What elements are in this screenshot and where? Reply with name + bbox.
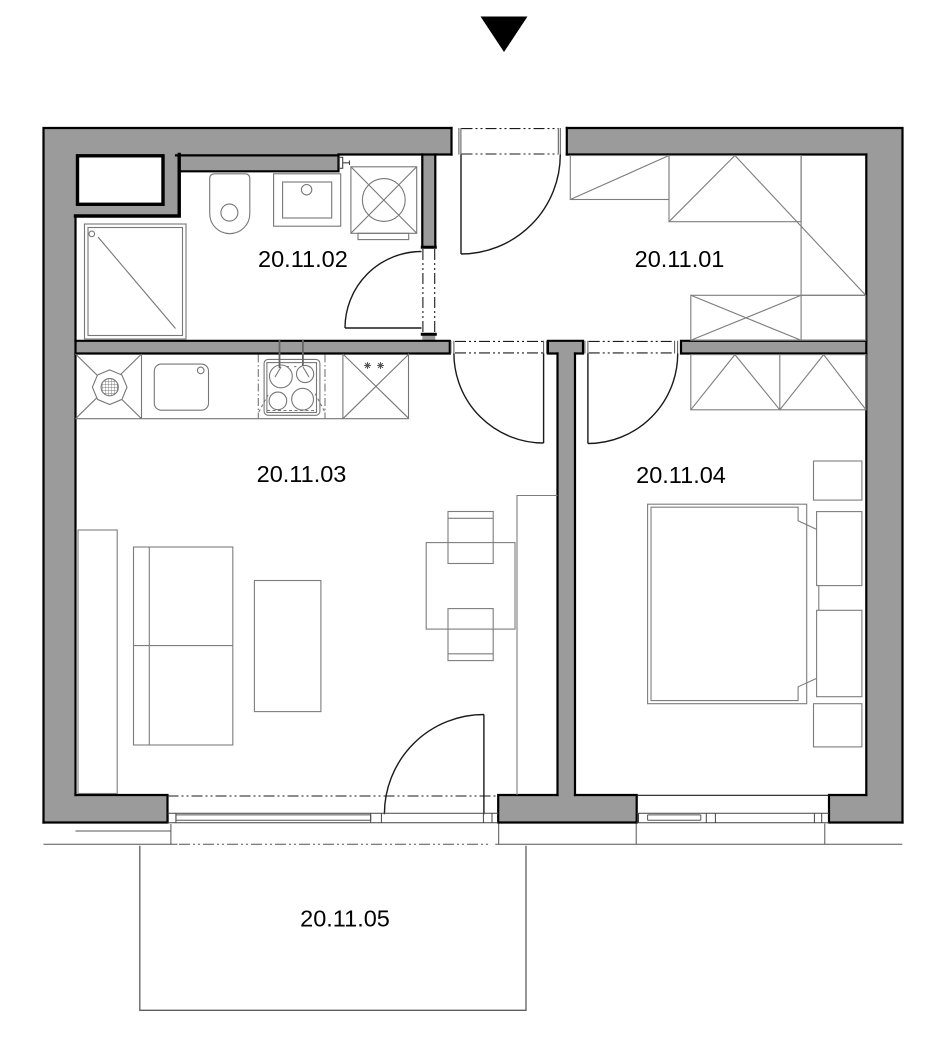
svg-text:20.11.03: 20.11.03 [257,461,347,487]
svg-text:20.11.04: 20.11.04 [636,462,726,488]
svg-text:20.11.01: 20.11.01 [635,246,725,272]
svg-text:20.11.05: 20.11.05 [300,906,390,932]
svg-text:20.11.02: 20.11.02 [258,246,348,272]
